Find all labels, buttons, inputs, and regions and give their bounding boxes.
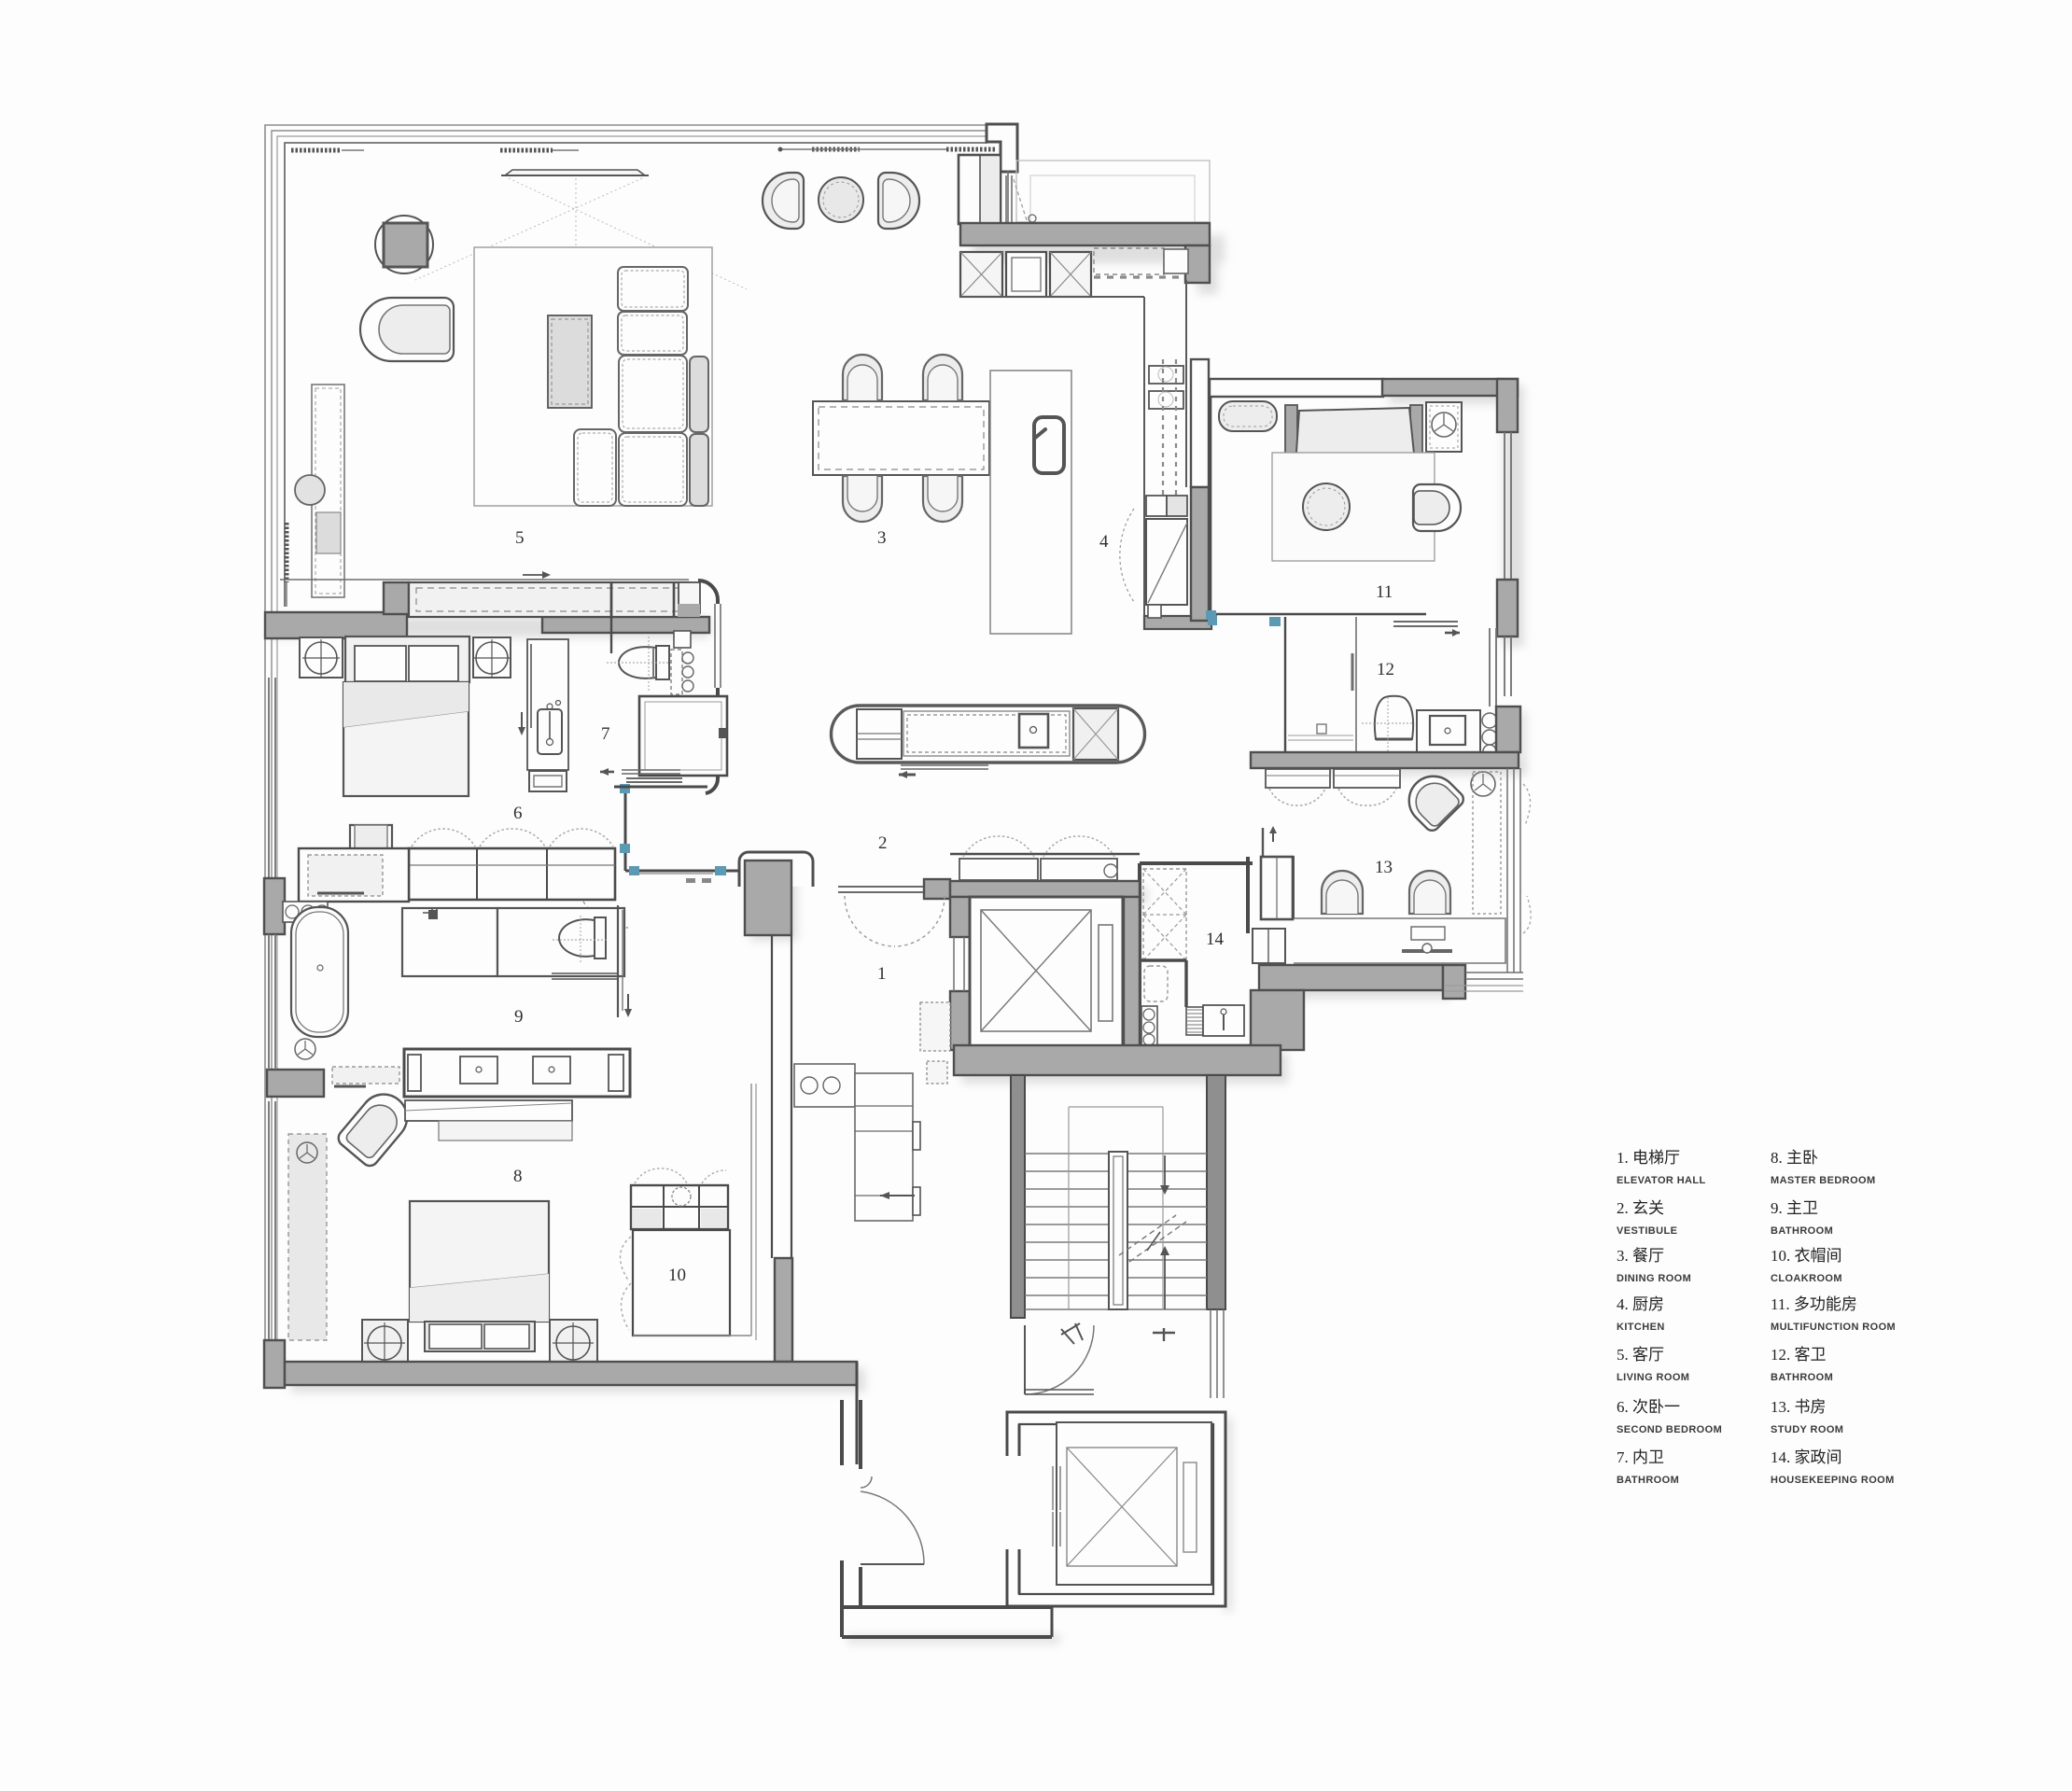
svg-text:1. 电梯厅: 1. 电梯厅 (1617, 1149, 1680, 1167)
svg-text:3. 餐厅: 3. 餐厅 (1617, 1247, 1664, 1265)
svg-text:13. 书房: 13. 书房 (1771, 1398, 1827, 1416)
svg-text:9: 9 (514, 1007, 524, 1027)
svg-text:8: 8 (513, 1167, 523, 1186)
svg-text:MULTIFUNCTION ROOM: MULTIFUNCTION ROOM (1771, 1322, 1896, 1333)
svg-text:3: 3 (877, 528, 887, 548)
svg-text:1: 1 (877, 964, 887, 984)
svg-text:CLOAKROOM: CLOAKROOM (1771, 1273, 1842, 1284)
svg-text:4. 厨房: 4. 厨房 (1617, 1295, 1664, 1313)
svg-text:STUDY ROOM: STUDY ROOM (1771, 1424, 1843, 1435)
svg-text:MASTER BEDROOM: MASTER BEDROOM (1771, 1175, 1876, 1186)
svg-text:12: 12 (1377, 660, 1394, 679)
svg-text:7. 内卫: 7. 内卫 (1617, 1448, 1664, 1466)
svg-text:LIVING ROOM: LIVING ROOM (1617, 1372, 1689, 1383)
svg-text:BATHROOM: BATHROOM (1771, 1372, 1833, 1383)
svg-text:ELEVATOR HALL: ELEVATOR HALL (1617, 1175, 1706, 1186)
svg-text:10: 10 (668, 1266, 686, 1285)
svg-text:13: 13 (1375, 858, 1393, 877)
svg-text:6. 次卧一: 6. 次卧一 (1617, 1398, 1680, 1416)
svg-text:5. 客厅: 5. 客厅 (1617, 1346, 1664, 1364)
svg-text:10. 衣帽间: 10. 衣帽间 (1771, 1247, 1842, 1265)
svg-text:4: 4 (1099, 532, 1109, 552)
svg-text:2. 玄关: 2. 玄关 (1617, 1199, 1664, 1217)
svg-text:SECOND BEDROOM: SECOND BEDROOM (1617, 1424, 1722, 1435)
svg-text:14. 家政间: 14. 家政间 (1771, 1448, 1842, 1466)
svg-text:9. 主卫: 9. 主卫 (1771, 1199, 1818, 1217)
svg-text:14: 14 (1206, 930, 1225, 949)
svg-text:11. 多功能房: 11. 多功能房 (1771, 1295, 1857, 1313)
svg-text:5: 5 (515, 528, 525, 548)
svg-text:HOUSEKEEPING ROOM: HOUSEKEEPING ROOM (1771, 1475, 1895, 1486)
svg-text:6: 6 (513, 804, 523, 823)
svg-text:BATHROOM: BATHROOM (1771, 1225, 1833, 1237)
svg-text:BATHROOM: BATHROOM (1617, 1475, 1679, 1486)
svg-text:11: 11 (1376, 582, 1393, 602)
svg-text:VESTIBULE: VESTIBULE (1617, 1225, 1677, 1237)
svg-text:KITCHEN: KITCHEN (1617, 1322, 1665, 1333)
svg-text:2: 2 (878, 833, 888, 853)
svg-text:8. 主卧: 8. 主卧 (1771, 1149, 1818, 1167)
svg-text:DINING ROOM: DINING ROOM (1617, 1273, 1691, 1284)
svg-text:7: 7 (601, 724, 610, 744)
svg-text:12. 客卫: 12. 客卫 (1771, 1346, 1827, 1364)
